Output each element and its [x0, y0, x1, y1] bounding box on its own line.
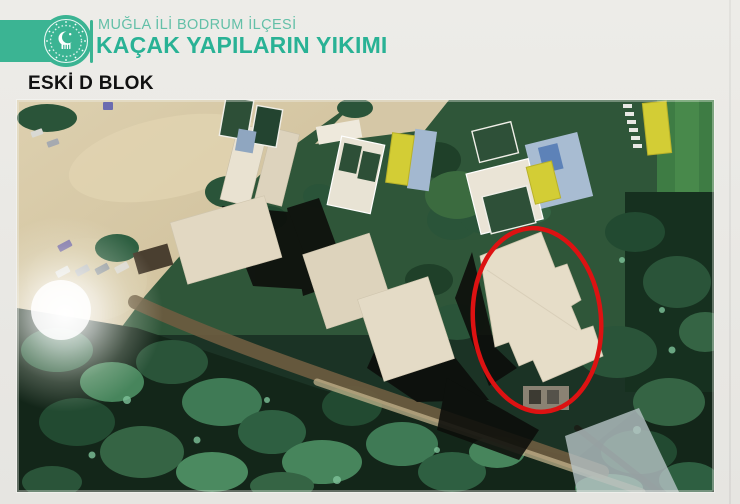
header-separator: [90, 20, 93, 63]
slide-edge-crease: [729, 0, 731, 504]
section-label: ESKİ D BLOK: [28, 73, 154, 95]
header-title: KAÇAK YAPILARIN YIKIMI: [96, 32, 388, 59]
presentation-slide: MUĞLA İLİ BODRUM İLÇESİ KAÇAK YAPILARIN …: [0, 0, 740, 504]
aerial-photo: [17, 100, 714, 492]
light-flare-core: [31, 280, 91, 340]
ministry-emblem-icon: [39, 14, 93, 68]
header-subtitle: MUĞLA İLİ BODRUM İLÇESİ: [98, 17, 297, 33]
aerial-photo-canvas: [17, 100, 714, 492]
